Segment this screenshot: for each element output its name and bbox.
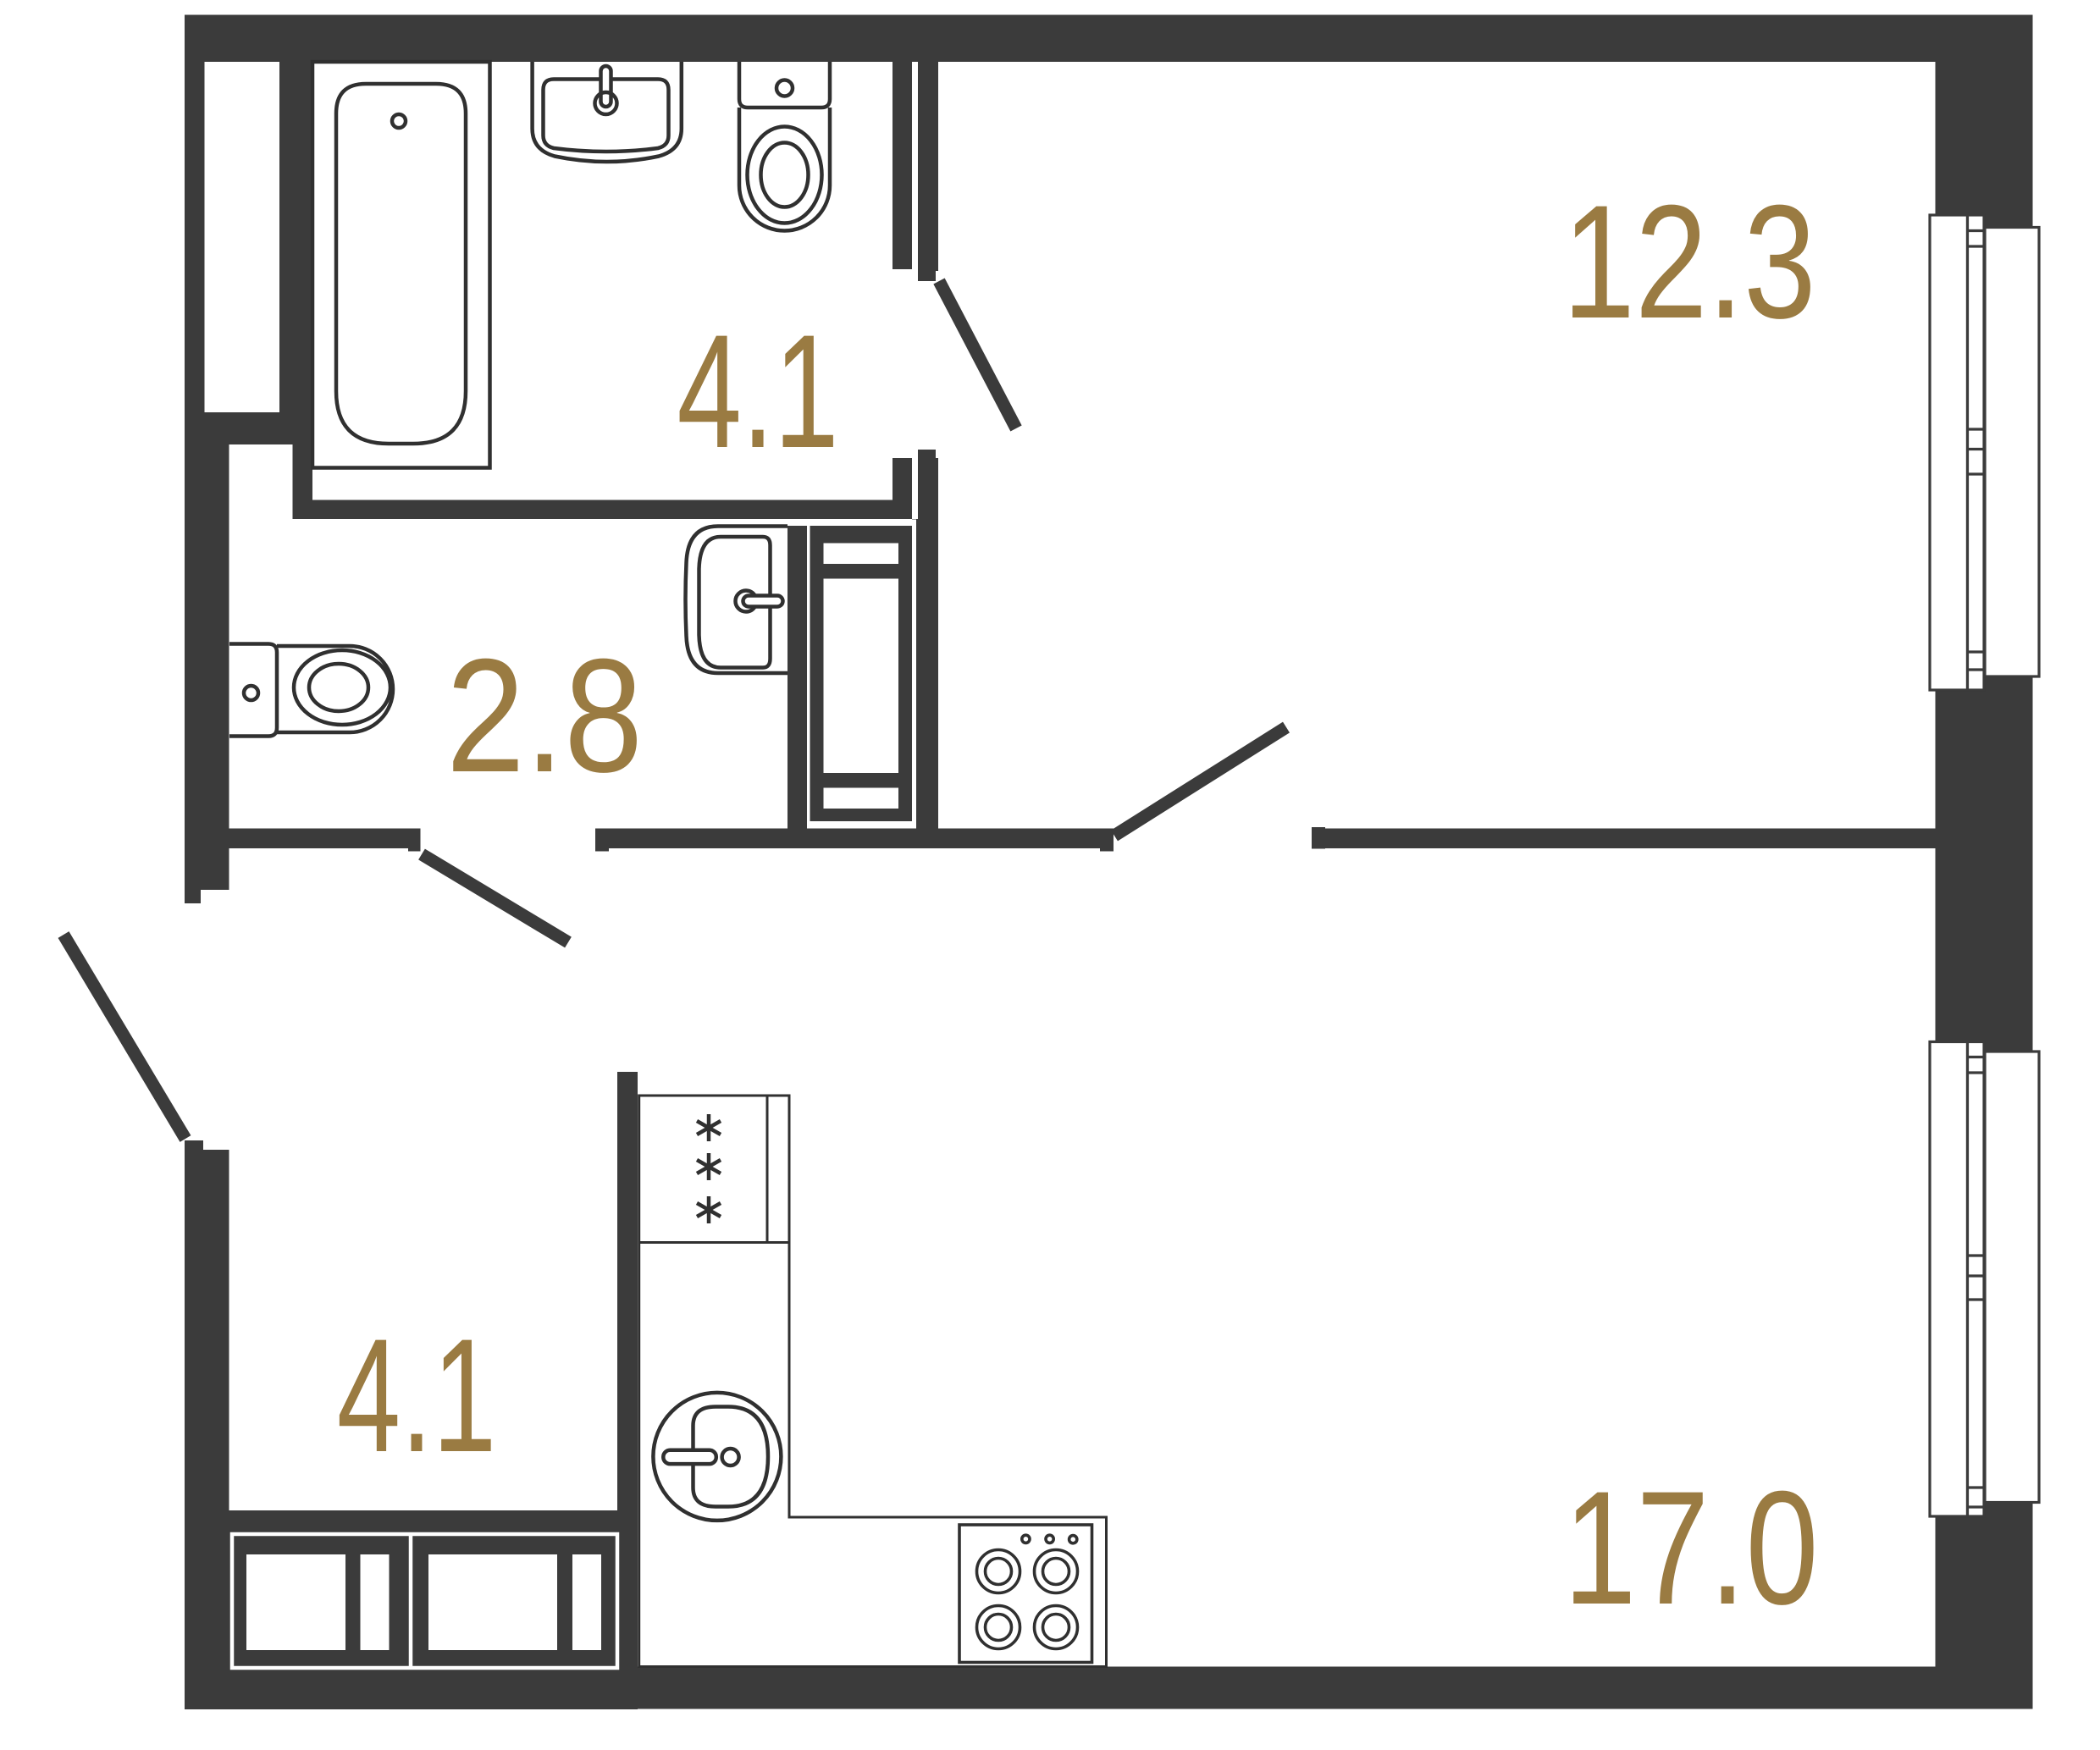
svg-text:2.8: 2.8 — [446, 627, 643, 807]
svg-text:12.3: 12.3 — [1562, 171, 1815, 352]
svg-text:4.1: 4.1 — [337, 1306, 497, 1486]
svg-text:4.1: 4.1 — [677, 301, 838, 482]
svg-text:17.0: 17.0 — [1563, 1457, 1818, 1637]
